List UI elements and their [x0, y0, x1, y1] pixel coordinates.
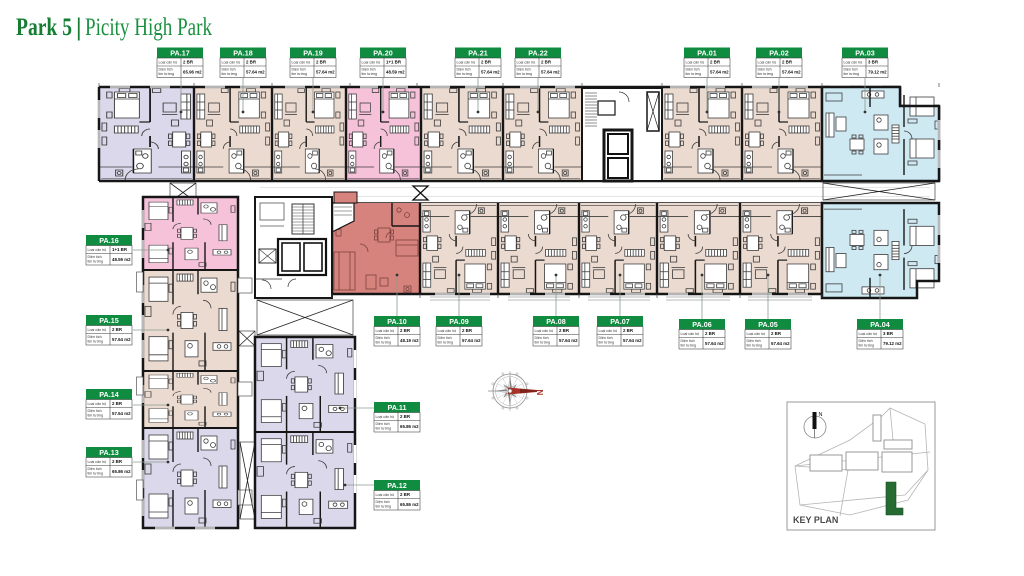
- svg-text:PA.06: PA.06: [692, 320, 711, 329]
- svg-text:tim tường: tim tường: [222, 72, 238, 76]
- svg-text:PA.08: PA.08: [546, 317, 565, 326]
- svg-text:tim tường: tim tường: [438, 341, 454, 345]
- svg-text:57.64 m2: 57.64 m2: [112, 411, 131, 416]
- svg-text:2 BR: 2 BR: [705, 331, 716, 336]
- svg-text:2 BR: 2 BR: [112, 327, 123, 332]
- svg-text:2 BR: 2 BR: [710, 60, 721, 65]
- svg-text:PA.03: PA.03: [855, 48, 874, 57]
- svg-text:2 BR: 2 BR: [559, 328, 570, 333]
- svg-text:Diện tích: Diện tích: [747, 339, 761, 343]
- svg-text:tim tường: tim tường: [376, 341, 392, 345]
- svg-text:PA.01: PA.01: [697, 48, 716, 57]
- svg-text:2 BR: 2 BR: [481, 60, 492, 65]
- svg-text:Loại căn hộ: Loại căn hộ: [376, 415, 395, 419]
- svg-text:PA.12: PA.12: [387, 481, 406, 490]
- svg-text:57.64 m2: 57.64 m2: [623, 338, 642, 343]
- svg-text:tim tường: tim tường: [362, 72, 378, 76]
- svg-text:48.59 m2: 48.59 m2: [112, 257, 131, 262]
- svg-text:57.64 m2: 57.64 m2: [462, 338, 481, 343]
- svg-text:Diện tích: Diện tích: [758, 68, 772, 72]
- svg-text:Diện tích: Diện tích: [535, 336, 549, 340]
- svg-text:Loại căn hộ: Loại căn hộ: [457, 60, 476, 64]
- svg-text:Diện tích: Diện tích: [159, 68, 173, 72]
- svg-text:tim tường: tim tường: [686, 72, 702, 76]
- svg-text:PA.05: PA.05: [758, 320, 777, 329]
- svg-text:PA.17: PA.17: [170, 48, 189, 57]
- svg-text:57.64 m2: 57.64 m2: [316, 69, 335, 74]
- svg-text:PA.16: PA.16: [99, 236, 118, 245]
- svg-text:2 BR: 2 BR: [462, 328, 473, 333]
- svg-text:57.64 m2: 57.64 m2: [112, 337, 131, 342]
- svg-text:Diện tích: Diện tích: [88, 409, 102, 413]
- svg-text:57.64 m2: 57.64 m2: [246, 69, 265, 74]
- svg-text:tim tường: tim tường: [859, 344, 875, 348]
- svg-text:Loại căn hộ: Loại căn hộ: [599, 329, 618, 333]
- svg-text:N: N: [535, 390, 544, 396]
- svg-text:PA.18: PA.18: [233, 48, 252, 57]
- svg-text:tim tường: tim tường: [88, 414, 104, 418]
- svg-text:Loại căn hộ: Loại căn hộ: [376, 493, 395, 497]
- svg-text:Diện tích: Diện tích: [88, 255, 102, 259]
- svg-text:2 BR: 2 BR: [400, 492, 411, 497]
- svg-text:PA.09: PA.09: [449, 317, 468, 326]
- svg-text:tim tường: tim tường: [376, 427, 392, 431]
- svg-text:57.64 m2: 57.64 m2: [705, 341, 724, 346]
- svg-text:2 BR: 2 BR: [400, 328, 411, 333]
- svg-text:57.64 m2: 57.64 m2: [710, 69, 729, 74]
- svg-text:PA.15: PA.15: [99, 316, 118, 325]
- svg-text:Diện tích: Diện tích: [88, 335, 102, 339]
- svg-text:Loại căn hộ: Loại căn hộ: [681, 332, 700, 336]
- svg-text:Loại căn hộ: Loại căn hộ: [535, 329, 554, 333]
- svg-text:57.64 m2: 57.64 m2: [541, 69, 560, 74]
- svg-text:KEY PLAN: KEY PLAN: [793, 515, 838, 525]
- svg-text:3 BR: 3 BR: [868, 60, 879, 65]
- svg-text:Loại căn hộ: Loại căn hộ: [88, 248, 107, 252]
- svg-text:48.59 m2: 48.59 m2: [386, 69, 405, 74]
- svg-text:Loại căn hộ: Loại căn hộ: [159, 60, 178, 64]
- svg-text:2 BR: 2 BR: [541, 60, 552, 65]
- svg-text:57.64 m2: 57.64 m2: [771, 341, 790, 346]
- svg-text:tim tường: tim tường: [457, 72, 473, 76]
- svg-text:Diện tích: Diện tích: [517, 68, 531, 72]
- svg-text:Loại căn hộ: Loại căn hộ: [844, 60, 863, 64]
- svg-text:Park 5: Park 5: [16, 14, 72, 41]
- svg-text:PA.13: PA.13: [99, 448, 118, 457]
- svg-text:PA.19: PA.19: [303, 48, 322, 57]
- svg-text:2 BR: 2 BR: [771, 331, 782, 336]
- svg-text:Diện tích: Diện tích: [222, 68, 236, 72]
- svg-text:tim tường: tim tường: [844, 72, 860, 76]
- svg-text:Loại căn hộ: Loại căn hộ: [376, 329, 395, 333]
- svg-text:PA.14: PA.14: [99, 390, 118, 399]
- svg-text:Diện tích: Diện tích: [376, 500, 390, 504]
- svg-text:tim tường: tim tường: [758, 72, 774, 76]
- svg-text:2 BR: 2 BR: [112, 401, 123, 406]
- svg-text:PA.21: PA.21: [468, 48, 487, 57]
- svg-text:65.86 m2: 65.86 m2: [400, 424, 419, 429]
- svg-text:tim tường: tim tường: [376, 505, 392, 509]
- svg-text:tim tường: tim tường: [747, 344, 763, 348]
- svg-text:PA.02: PA.02: [769, 48, 788, 57]
- svg-text:Diện tích: Diện tích: [599, 336, 613, 340]
- svg-text:tim tường: tim tường: [517, 72, 533, 76]
- svg-text:PA.04: PA.04: [870, 320, 889, 329]
- svg-text:PA.10: PA.10: [387, 317, 406, 326]
- svg-text:2 BR: 2 BR: [246, 60, 257, 65]
- svg-text:65.96 m2: 65.96 m2: [183, 69, 202, 74]
- svg-text:Loại căn hộ: Loại căn hộ: [222, 60, 241, 64]
- svg-text:1+1 BR: 1+1 BR: [112, 247, 128, 252]
- svg-text:2 BR: 2 BR: [316, 60, 327, 65]
- svg-text:Diện tích: Diện tích: [859, 339, 873, 343]
- svg-text:2 BR: 2 BR: [183, 60, 194, 65]
- svg-text:tim tường: tim tường: [159, 72, 175, 76]
- svg-text:PA.22: PA.22: [528, 48, 547, 57]
- svg-text:Diện tích: Diện tích: [844, 68, 858, 72]
- svg-text:PA.07: PA.07: [610, 317, 629, 326]
- svg-text:1+1 BR: 1+1 BR: [386, 60, 402, 65]
- svg-text:tim tường: tim tường: [88, 340, 104, 344]
- svg-text:57.64 m2: 57.64 m2: [481, 69, 500, 74]
- svg-text:Diện tích: Diện tích: [376, 422, 390, 426]
- svg-text:N: N: [819, 412, 823, 418]
- svg-text:65.86 m2: 65.86 m2: [112, 469, 131, 474]
- svg-text:|: |: [76, 14, 82, 41]
- svg-text:2 BR: 2 BR: [623, 328, 634, 333]
- svg-text:79.12 m2: 79.12 m2: [868, 69, 887, 74]
- svg-text:Diện tích: Diện tích: [686, 68, 700, 72]
- svg-text:Diện tích: Diện tích: [438, 336, 452, 340]
- svg-text:2 BR: 2 BR: [400, 414, 411, 419]
- svg-text:Picity High Park: Picity High Park: [85, 14, 212, 41]
- svg-text:48.19 m2: 48.19 m2: [400, 338, 419, 343]
- svg-text:Loại căn hộ: Loại căn hộ: [88, 402, 107, 406]
- svg-text:Loại căn hộ: Loại căn hộ: [747, 332, 766, 336]
- svg-text:Diện tích: Diện tích: [88, 467, 102, 471]
- svg-text:2 BR: 2 BR: [782, 60, 793, 65]
- svg-text:65.86 m2: 65.86 m2: [400, 502, 419, 507]
- svg-text:Diện tích: Diện tích: [292, 68, 306, 72]
- svg-text:2 BR: 2 BR: [112, 459, 123, 464]
- svg-text:PA.11: PA.11: [387, 403, 406, 412]
- svg-text:79.12 m2: 79.12 m2: [883, 341, 902, 346]
- svg-text:Diện tích: Diện tích: [376, 336, 390, 340]
- svg-text:Loại căn hộ: Loại căn hộ: [859, 332, 878, 336]
- svg-text:Loại căn hộ: Loại căn hộ: [88, 328, 107, 332]
- svg-text:Loại căn hộ: Loại căn hộ: [686, 60, 705, 64]
- svg-text:Diện tích: Diện tích: [457, 68, 471, 72]
- svg-text:3 BR: 3 BR: [883, 331, 894, 336]
- svg-text:tim tường: tim tường: [88, 260, 104, 264]
- svg-text:tim tường: tim tường: [681, 344, 697, 348]
- svg-text:tim tường: tim tường: [292, 72, 308, 76]
- svg-text:tim tường: tim tường: [535, 341, 551, 345]
- svg-text:Diện tích: Diện tích: [681, 339, 695, 343]
- svg-text:tim tường: tim tường: [88, 472, 104, 476]
- svg-text:57.64 m2: 57.64 m2: [782, 69, 801, 74]
- svg-text:Diện tích: Diện tích: [362, 68, 376, 72]
- svg-text:57.64 m2: 57.64 m2: [559, 338, 578, 343]
- svg-text:Loại căn hộ: Loại căn hộ: [292, 60, 311, 64]
- svg-text:tim tường: tim tường: [599, 341, 615, 345]
- svg-text:Loại căn hộ: Loại căn hộ: [758, 60, 777, 64]
- svg-text:Loại căn hộ: Loại căn hộ: [88, 460, 107, 464]
- svg-text:PA.20: PA.20: [373, 48, 392, 57]
- svg-text:Loại căn hộ: Loại căn hộ: [517, 60, 536, 64]
- svg-text:Loại căn hộ: Loại căn hộ: [362, 60, 381, 64]
- svg-text:Loại căn hộ: Loại căn hộ: [438, 329, 457, 333]
